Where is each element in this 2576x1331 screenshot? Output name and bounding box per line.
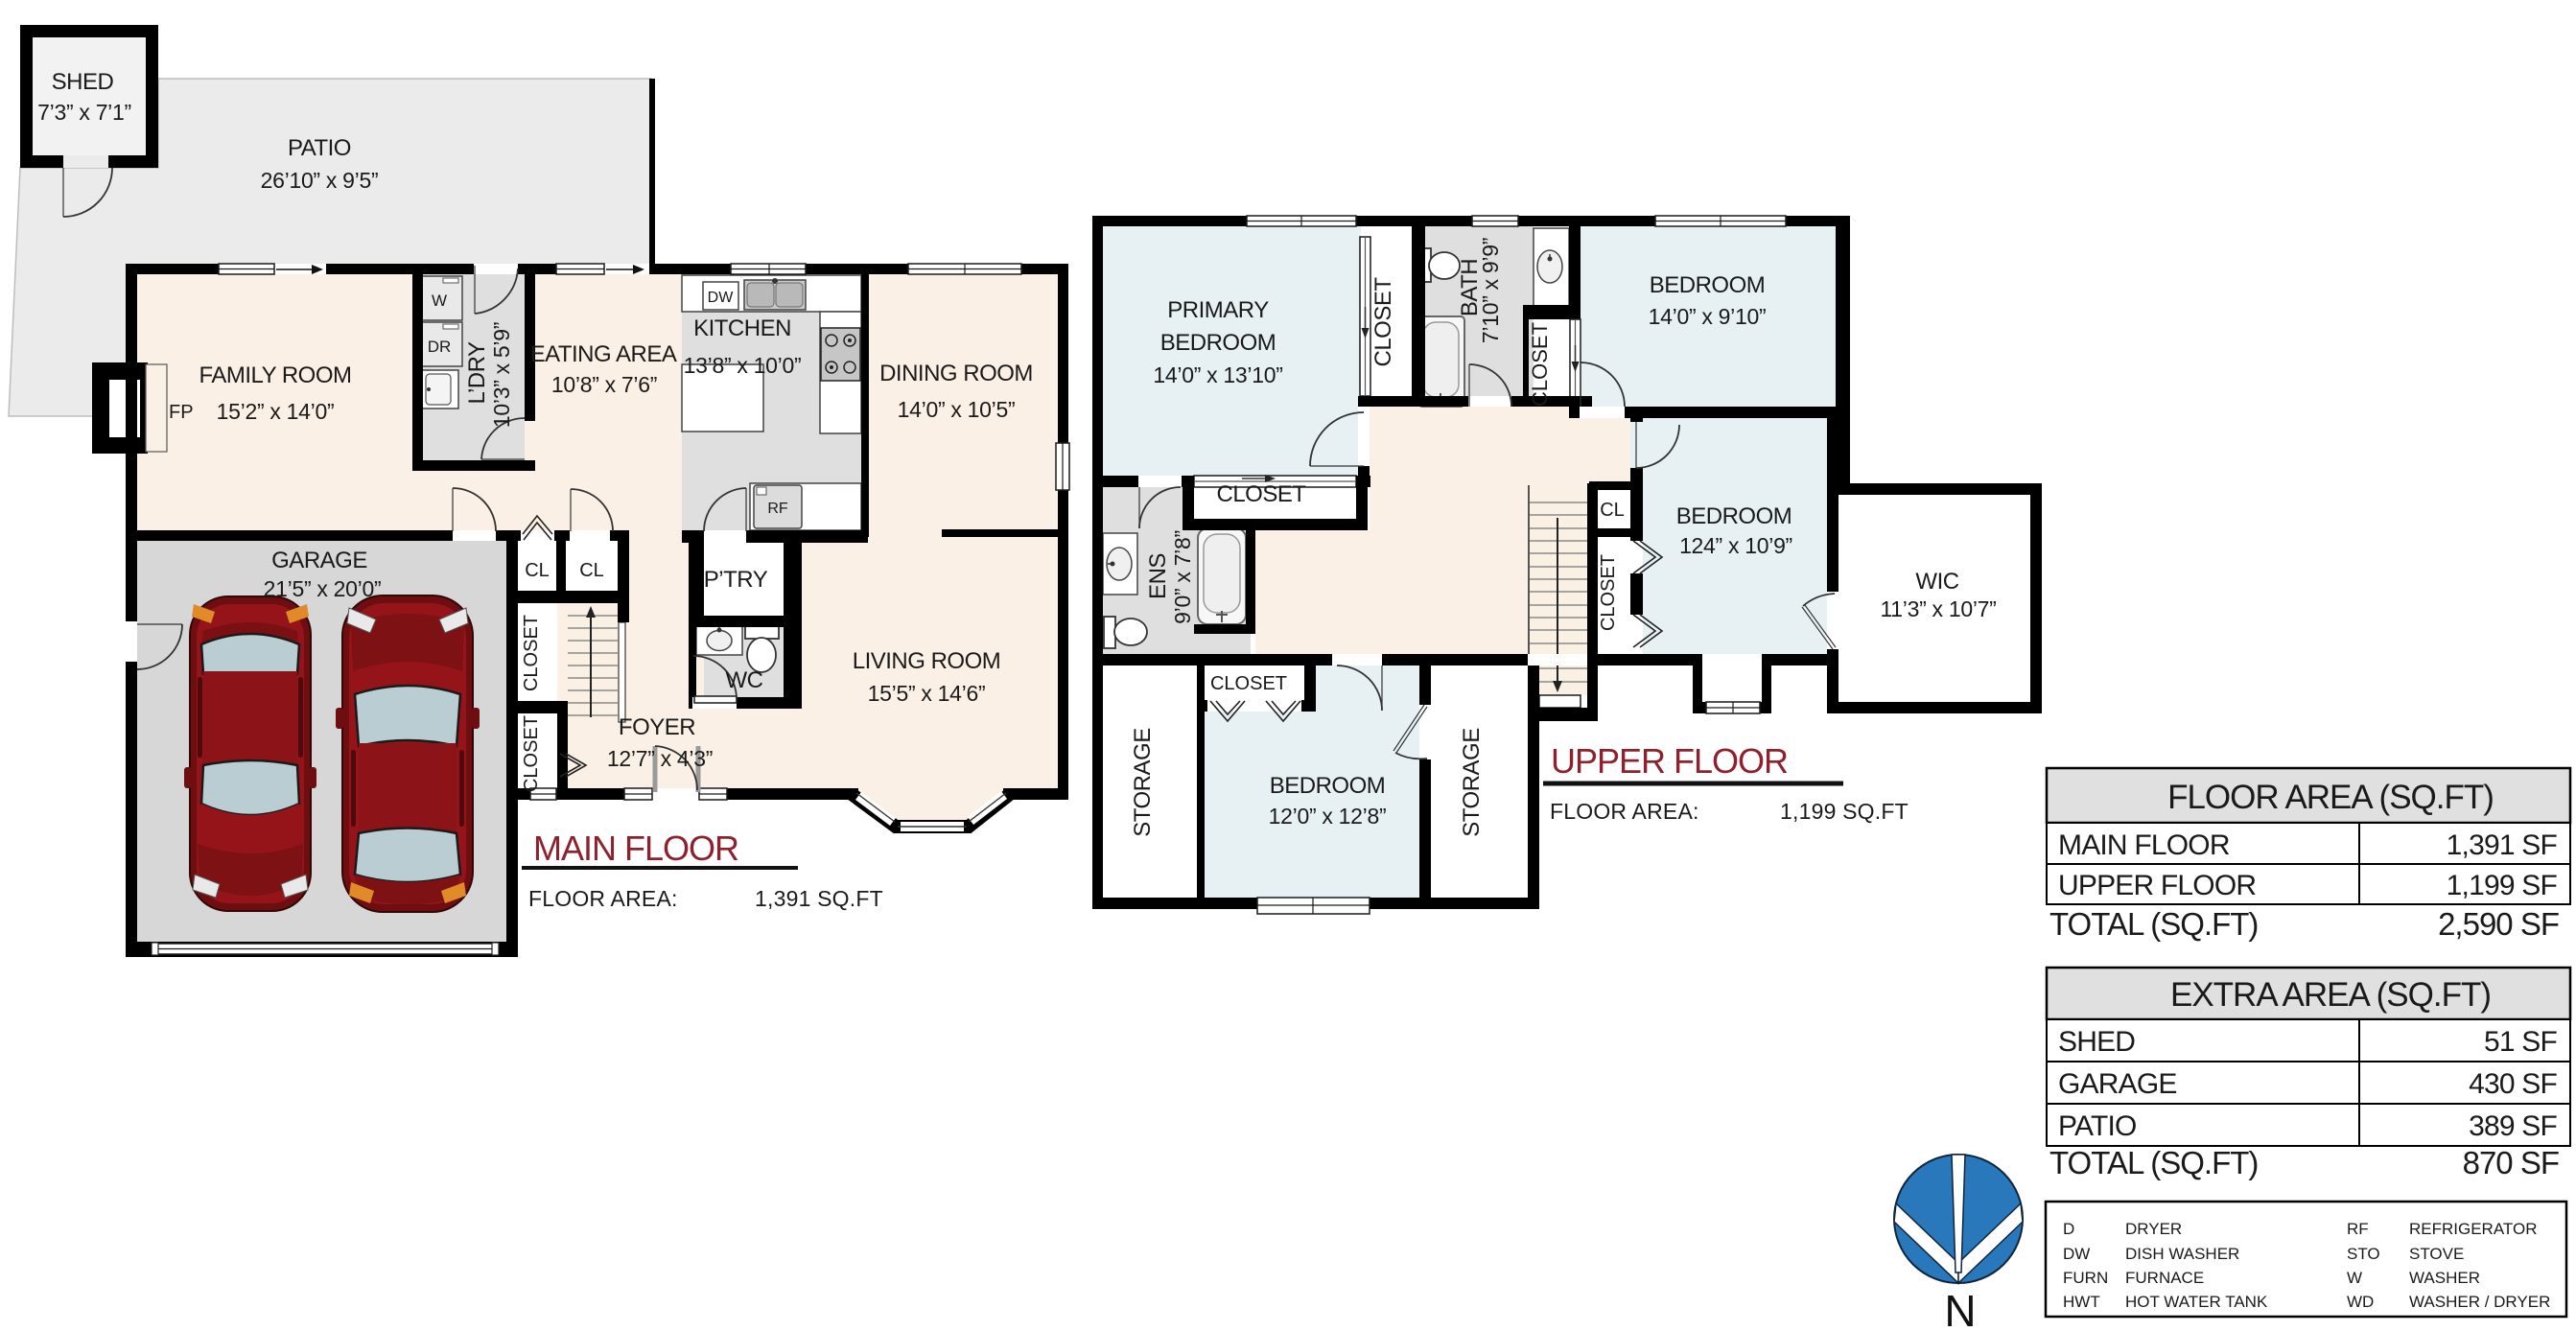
svg-text:CL: CL [579,560,604,581]
svg-text:DRYER: DRYER [2125,1220,2182,1238]
svg-text:P’TRY: P’TRY [704,567,768,593]
svg-text:9’0” x 7’8”: 9’0” x 7’8” [1170,530,1195,624]
svg-text:13’8” x 10’0”: 13’8” x 10’0” [684,353,802,378]
svg-text:WC: WC [726,667,763,693]
svg-text:STORAGE: STORAGE [1459,728,1485,836]
svg-text:N: N [1944,1286,1976,1331]
svg-text:HWT: HWT [2063,1293,2100,1311]
svg-text:14’0” x 9’10”: 14’0” x 9’10” [1649,304,1767,329]
svg-text:FP: FP [169,402,194,423]
svg-text:WD: WD [2347,1293,2374,1311]
svg-text:FLOOR AREA:: FLOOR AREA: [528,886,678,911]
svg-text:WASHER / DRYER: WASHER / DRYER [2409,1293,2550,1311]
svg-text:12’0” x 12’8”: 12’0” x 12’8” [1269,804,1387,829]
svg-text:FOYER: FOYER [619,714,695,740]
svg-text:WIC: WIC [1915,569,1958,595]
svg-text:PRIMARY: PRIMARY [1167,297,1269,323]
svg-text:EXTRA AREA (SQ.FT): EXTRA AREA (SQ.FT) [2170,976,2491,1014]
svg-text:430 SF: 430 SF [2469,1068,2557,1100]
svg-text:HOT WATER TANK: HOT WATER TANK [2125,1293,2268,1311]
svg-text:11’3” x 10’7”: 11’3” x 10’7” [1881,596,1997,621]
svg-text:STOVE: STOVE [2409,1245,2464,1263]
svg-text:UPPER FLOOR: UPPER FLOOR [1551,741,1788,781]
svg-text:CL: CL [1600,500,1625,521]
svg-text:7’3” x 7’1”: 7’3” x 7’1” [37,100,131,125]
svg-text:REFRIGERATOR: REFRIGERATOR [2409,1220,2538,1238]
svg-text:CLOSET: CLOSET [1528,322,1552,407]
svg-text:L’DRY: L’DRY [464,341,490,405]
svg-text:14’0” x 10’5”: 14’0” x 10’5” [898,397,1016,422]
svg-text:10’8” x 7’6”: 10’8” x 7’6” [551,372,657,397]
svg-text:BEDROOM: BEDROOM [1650,272,1766,298]
svg-text:7’10” x 9’9”: 7’10” x 9’9” [1478,238,1503,343]
svg-text:870 SF: 870 SF [2463,1145,2559,1180]
svg-text:1,199 SF: 1,199 SF [2447,870,2558,901]
svg-text:TOTAL (SQ.FT): TOTAL (SQ.FT) [2049,906,2258,942]
svg-text:FLOOR AREA:: FLOOR AREA: [1550,799,1699,824]
svg-text:DISH WASHER: DISH WASHER [2125,1245,2239,1263]
svg-text:BEDROOM: BEDROOM [1676,503,1792,529]
svg-text:RF: RF [2347,1220,2369,1238]
svg-text:GARAGE: GARAGE [2058,1068,2177,1100]
svg-text:DW: DW [708,290,735,306]
svg-text:PATIO: PATIO [288,135,351,161]
svg-text:PATIO: PATIO [2058,1110,2137,1142]
svg-text:DINING ROOM: DINING ROOM [879,361,1033,386]
svg-text:51 SF: 51 SF [2484,1026,2558,1058]
svg-text:MAIN FLOOR: MAIN FLOOR [533,829,738,868]
svg-text:26’10” x 9’5”: 26’10” x 9’5” [261,168,379,193]
svg-text:1,391 SQ.FT: 1,391 SQ.FT [755,886,883,911]
svg-text:124” x 10’9”: 124” x 10’9” [1679,533,1792,558]
svg-text:KITCHEN: KITCHEN [693,315,791,341]
svg-text:389 SF: 389 SF [2469,1110,2557,1142]
svg-text:STO: STO [2347,1245,2380,1263]
svg-text:MAIN FLOOR: MAIN FLOOR [2058,829,2230,861]
svg-text:FURN: FURN [2063,1269,2108,1287]
svg-text:CLOSET: CLOSET [1598,554,1619,631]
svg-text:UPPER FLOOR: UPPER FLOOR [2058,870,2256,901]
svg-text:W: W [432,292,447,310]
svg-text:DW: DW [2063,1245,2090,1263]
svg-text:CLOSET: CLOSET [1216,481,1306,507]
svg-text:CLOSET: CLOSET [521,615,542,691]
svg-text:GARAGE: GARAGE [271,548,367,573]
svg-text:LIVING ROOM: LIVING ROOM [853,648,1001,674]
svg-text:10’3” x 5’9”: 10’3” x 5’9” [489,322,514,428]
svg-text:15’5” x 14’6”: 15’5” x 14’6” [868,681,986,706]
svg-text:DR: DR [428,338,452,356]
svg-text:BEDROOM: BEDROOM [1270,773,1386,799]
svg-text:12’7” x 4’3”: 12’7” x 4’3” [607,746,713,771]
svg-text:21’5” x 20’0”: 21’5” x 20’0” [264,576,382,601]
svg-text:CLOSET: CLOSET [521,715,542,792]
svg-text:CLOSET: CLOSET [1370,277,1396,367]
svg-text:FLOOR AREA (SQ.FT): FLOOR AREA (SQ.FT) [2167,779,2494,816]
svg-text:15’2” x 14’0”: 15’2” x 14’0” [217,399,335,424]
svg-text:STORAGE: STORAGE [1130,728,1156,836]
svg-text:BEDROOM: BEDROOM [1160,330,1276,356]
svg-text:TOTAL (SQ.FT): TOTAL (SQ.FT) [2049,1145,2258,1180]
svg-text:D: D [2063,1220,2074,1238]
svg-text:2,590 SF: 2,590 SF [2438,906,2559,942]
svg-text:W: W [2347,1269,2362,1287]
svg-text:14’0” x 13’10”: 14’0” x 13’10” [1153,362,1282,387]
svg-text:FURNACE: FURNACE [2125,1269,2204,1287]
svg-text:CL: CL [525,560,550,581]
svg-text:EATING AREA: EATING AREA [530,341,677,367]
svg-text:FAMILY ROOM: FAMILY ROOM [199,362,352,388]
svg-text:ENS: ENS [1145,553,1171,599]
svg-text:SHED: SHED [52,69,114,95]
svg-text:WASHER: WASHER [2409,1269,2480,1287]
svg-text:1,199 SQ.FT: 1,199 SQ.FT [1780,799,1909,824]
svg-text:1,391 SF: 1,391 SF [2447,829,2558,861]
svg-text:RF: RF [767,501,788,517]
svg-text:CLOSET: CLOSET [1210,673,1287,694]
svg-text:SHED: SHED [2058,1026,2135,1058]
